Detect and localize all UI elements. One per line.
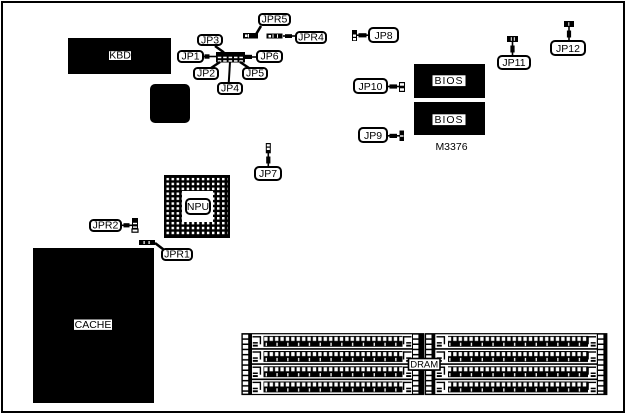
svg-text:JP1: JP1	[181, 51, 199, 63]
svg-text:JP8: JP8	[374, 30, 392, 42]
svg-text:BIOS: BIOS	[434, 114, 463, 126]
svg-text:BIOS: BIOS	[434, 75, 463, 87]
svg-text:JPR4: JPR4	[298, 32, 324, 44]
svg-text:JP10: JP10	[359, 81, 383, 93]
svg-text:JPR1: JPR1	[164, 249, 190, 261]
svg-text:CACHE: CACHE	[75, 319, 112, 331]
svg-text:JPR5: JPR5	[262, 14, 288, 26]
svg-text:JP6: JP6	[260, 51, 278, 63]
svg-text:JP11: JP11	[502, 57, 525, 69]
svg-text:DRAM: DRAM	[410, 359, 438, 370]
svg-text:JP9: JP9	[364, 130, 382, 142]
svg-text:KBD: KBD	[109, 50, 131, 62]
svg-text:JP4: JP4	[221, 83, 239, 95]
svg-text:JP2: JP2	[197, 68, 215, 80]
svg-text:NPU: NPU	[187, 201, 209, 213]
svg-text:JP12: JP12	[556, 43, 580, 55]
svg-text:JPR2: JPR2	[93, 220, 119, 232]
svg-text:M3376: M3376	[435, 141, 467, 153]
svg-text:JP3: JP3	[201, 35, 219, 47]
svg-text:JP5: JP5	[246, 68, 264, 80]
svg-text:JP7: JP7	[259, 168, 277, 180]
